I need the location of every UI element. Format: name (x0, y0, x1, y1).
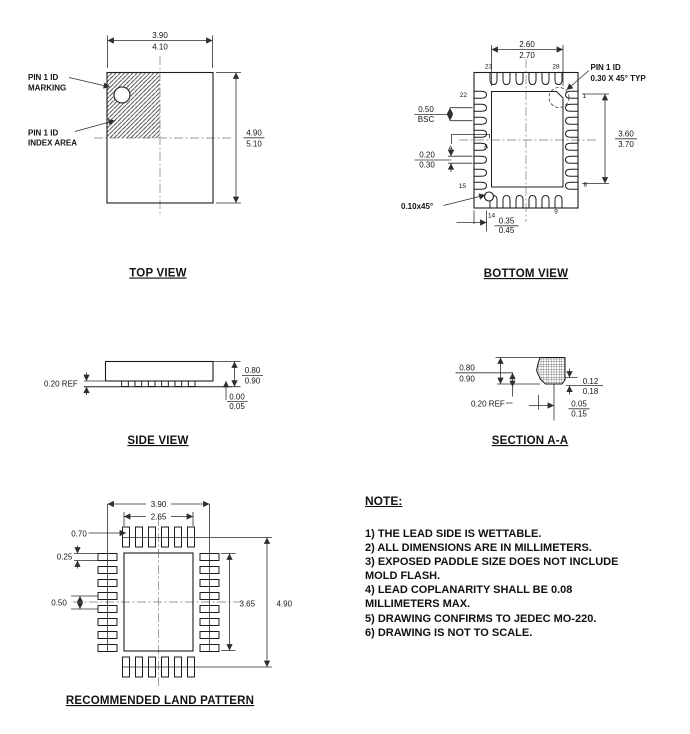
pad (566, 104, 579, 111)
leader-pin1-marking (69, 78, 110, 88)
pad (474, 182, 487, 189)
pin1-marking-circle (114, 87, 130, 103)
pad (188, 381, 195, 387)
pad (474, 104, 487, 111)
dim-pad-width: 0.25 (57, 553, 73, 562)
pad (149, 527, 156, 547)
dim-standoff-max: 0.05 (229, 402, 245, 411)
pad (474, 130, 487, 137)
pin1-id-label-1: PIN 1 ID (591, 63, 621, 72)
pad (566, 117, 579, 124)
side-view-title: SIDE VIEW (127, 435, 188, 447)
pad (188, 527, 195, 547)
chamfer-label: 0.10x45° (401, 202, 433, 211)
dim-foot-min: 0.05 (571, 400, 587, 409)
pad (529, 73, 536, 85)
extension-lines (450, 108, 473, 121)
pad (516, 73, 523, 85)
dim-lead-width-max: 0.30 (419, 161, 435, 170)
pad (136, 527, 143, 547)
pin1-id-label-2: 0.30 X 45° TYP (591, 74, 647, 83)
note-line: MOLD FLASH. (365, 569, 670, 583)
extension-lines (539, 385, 555, 421)
pin-number-28: 28 (552, 64, 560, 71)
extension-lines (74, 554, 98, 561)
pad (566, 169, 579, 176)
pad (135, 381, 142, 387)
pad (175, 527, 182, 547)
pin14-chamfer-circle (485, 192, 494, 201)
pin-number-8: 8 (584, 182, 588, 189)
pin1-id-dashed-circle (549, 88, 569, 108)
pad (542, 73, 549, 85)
pin-number-9: 9 (554, 209, 558, 216)
note-line: 1) THE LEAD SIDE IS WETTABLE. (365, 527, 670, 541)
dim-pad-length: 0.70 (71, 530, 87, 539)
pin-number-14: 14 (488, 213, 496, 220)
notes-list: 1) THE LEAD SIDE IS WETTABLE. 2) ALL DIM… (365, 527, 670, 640)
pad (474, 117, 487, 124)
pad (474, 169, 487, 176)
note-line: MILLIMETERS MAX. (365, 597, 670, 611)
dim-foot-max: 0.15 (571, 410, 587, 419)
section-marker-a-right: A (484, 144, 489, 151)
pad (566, 130, 579, 137)
dim-width: 3.90 (151, 500, 167, 509)
pad (555, 73, 562, 85)
dim-paddle-height-max: 3.70 (618, 140, 634, 149)
note-line: 6) DRAWING IS NOT TO SCALE. (365, 626, 670, 640)
pad (162, 527, 169, 547)
pin-number-1: 1 (583, 93, 587, 100)
note-line: 4) LEAD COPLANARITY SHALL BE 0.08 (365, 583, 670, 597)
notes-heading: NOTE: (365, 494, 670, 508)
dim-lead-thickness: 0.20 REF (44, 380, 78, 389)
note-line: 5) DRAWING CONFIRMS TO JEDEC MO-220. (365, 612, 670, 626)
pin1-marking-label-1: PIN 1 ID (28, 73, 58, 82)
dim-pitch-bsc: BSC (418, 115, 435, 124)
dim-ref: 0.20 REF (471, 400, 505, 409)
notes-block: NOTE: 1) THE LEAD SIDE IS WETTABLE. 2) A… (365, 494, 670, 640)
package-outline-drawing: 3.90 4.10 4.90 5.10 PIN 1 ID MARKING PIN… (0, 0, 690, 734)
bottom-view-title: BOTTOM VIEW (484, 268, 568, 280)
extension-lines (71, 596, 98, 609)
pad (503, 73, 510, 85)
pad (516, 196, 523, 209)
lead-cross-section (537, 358, 566, 385)
extension-lines (213, 362, 241, 387)
dim-height-max: 0.90 (245, 377, 261, 386)
note-line: 2) ALL DIMENSIONS ARE IN MILLIMETERS. (365, 541, 670, 555)
pad (123, 527, 130, 547)
section-aa: 0.80 0.90 0.20 REF 0.12 0.18 0.05 0.15 S… (456, 358, 604, 448)
pad (122, 381, 129, 387)
pad (148, 381, 155, 387)
pad (474, 156, 487, 163)
pin1-index-hatch-area (107, 73, 160, 139)
dim-height-max: 0.90 (459, 375, 475, 384)
dim-standoff-min: 0.00 (229, 393, 245, 402)
dim-pitch-value: 0.50 (418, 105, 434, 114)
dim-paddle-width-min: 2.60 (519, 40, 535, 49)
package-body-outline (106, 362, 214, 382)
pad (503, 196, 510, 209)
pad (175, 381, 182, 387)
pin1-marking-label-2: MARKING (28, 84, 66, 93)
extension-lines (448, 156, 473, 163)
dim-height-max: 5.10 (246, 140, 262, 149)
dim-lead-width-min: 0.20 (419, 151, 435, 160)
exposed-paddle (492, 92, 564, 188)
pad (542, 196, 549, 209)
dim-width-min: 3.90 (152, 31, 168, 40)
leader-ref (506, 387, 513, 403)
pad (566, 156, 579, 163)
extension-lines (496, 358, 541, 385)
dim-inner-height: 3.65 (240, 600, 256, 609)
pad (555, 196, 562, 209)
pad (529, 196, 536, 209)
pin-number-23: 23 (485, 64, 493, 71)
note-line: 3) EXPOSED PADDLE SIZE DOES NOT INCLUDE (365, 555, 670, 569)
side-pads (122, 381, 195, 387)
top-view-title: TOP VIEW (129, 268, 186, 280)
dim-tip-thickness-max: 0.18 (583, 387, 599, 396)
dim-paddle-width-max: 2.70 (519, 51, 535, 60)
bottom-view: 2.60 2.70 3.60 3.70 0.50 BSC 0.20 0.30 A… (401, 40, 646, 280)
pad (474, 91, 487, 98)
top-view: 3.90 4.10 4.90 5.10 PIN 1 ID MARKING PIN… (28, 31, 265, 280)
dim-tip-thickness-min: 0.12 (583, 377, 599, 386)
pin1-index-label-2: INDEX AREA (28, 139, 77, 148)
extension-lines (474, 211, 487, 232)
dim-lead-length-max: 0.45 (499, 226, 515, 235)
pad (162, 381, 169, 387)
dim-height-min: 4.90 (246, 129, 262, 138)
dim-pitch: 0.50 (51, 599, 67, 608)
dim-height-min: 0.80 (245, 366, 261, 375)
leader-chamfer (444, 195, 486, 206)
land-pattern: 3.90 2.65 0.70 0.25 0.50 3.65 4.90 RECOM… (51, 500, 292, 707)
dim-width-max: 4.10 (152, 43, 168, 52)
pin-number-22: 22 (460, 92, 468, 99)
dim-height: 4.90 (277, 600, 293, 609)
dim-paddle-height-min: 3.60 (618, 130, 634, 139)
pad (566, 182, 579, 189)
pad (490, 73, 497, 85)
dim-lead-length-min: 0.35 (499, 217, 515, 226)
pad (566, 143, 579, 150)
section-marker-a-left: A (448, 145, 453, 152)
dim-height-min: 0.80 (459, 364, 475, 373)
dim-inner-width: 2.65 (151, 513, 167, 522)
section-aa-title: SECTION A-A (492, 435, 569, 447)
pin-number-15: 15 (459, 183, 467, 190)
side-view: 0.20 REF 0.80 0.90 0.00 0.05 SIDE VIEW (44, 362, 263, 448)
pin1-index-label-1: PIN 1 ID (28, 129, 58, 138)
land-pattern-title: RECOMMENDED LAND PATTERN (66, 695, 254, 707)
